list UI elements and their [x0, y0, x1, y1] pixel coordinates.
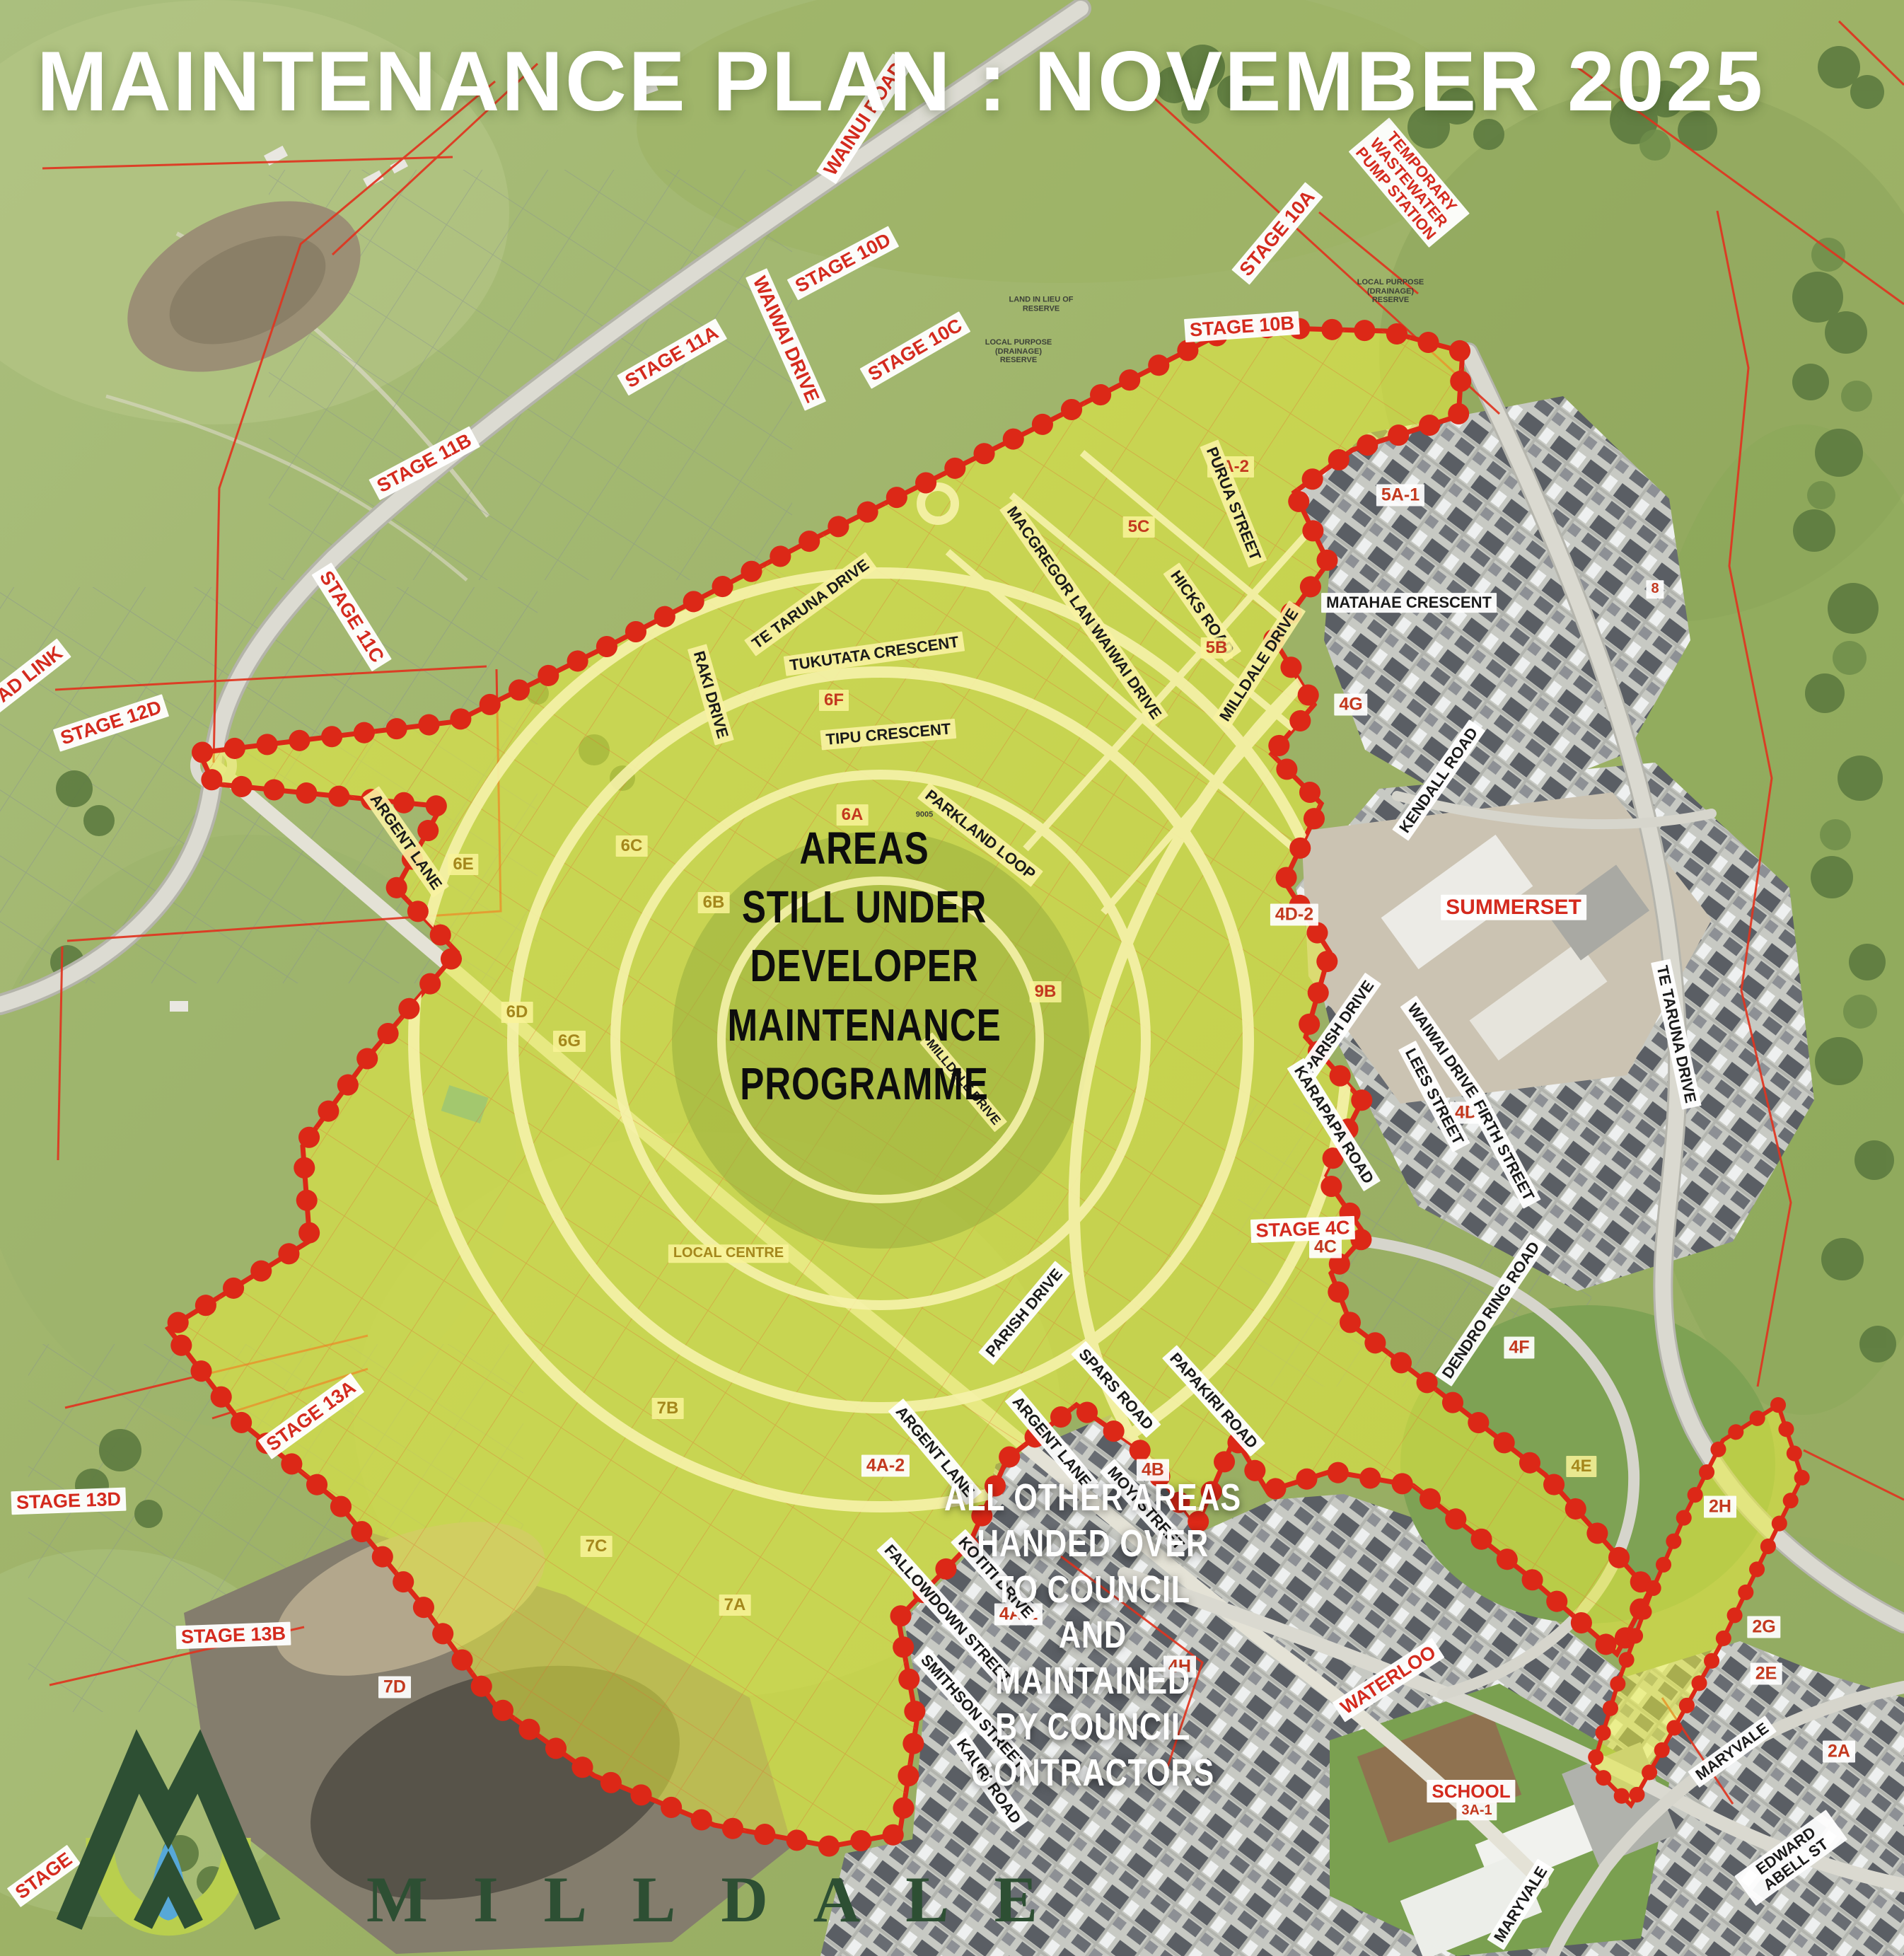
map-label: WAIWAI DRIVE [1084, 617, 1168, 727]
milldale-logo: MILLDALE [41, 1685, 1173, 1956]
map-label: STAGE 13D [11, 1488, 126, 1515]
map-label: 2G [1747, 1616, 1780, 1638]
map-label: TIPU CRESCENT [820, 719, 957, 750]
map-label: STAGE 13A [258, 1373, 365, 1459]
map-label: 7A [719, 1595, 751, 1616]
map-label: LOCAL CENTRE [668, 1244, 789, 1263]
map-label: 4A-2 [861, 1455, 910, 1477]
map-label: ARGENT LANE [363, 786, 449, 898]
map-label: TE TARUNA DRIVE [1651, 959, 1701, 1109]
map-label: STAGE 11C [311, 562, 391, 671]
map-label: 2A [1823, 1741, 1855, 1763]
map-label: 9B [1030, 981, 1062, 1002]
map-label: TEMPORARY WASTEWATER PUMP STATION [1348, 117, 1469, 248]
map-root: WAINUI ROADSTAGE 10ATEMPORARY WASTEWATER… [0, 0, 1904, 1956]
map-label: WATERLOO [1333, 1638, 1445, 1722]
milldale-logo-icon [41, 1685, 296, 1956]
map-label: SCHOOL [1427, 1780, 1515, 1802]
milldale-wordmark: MILLDALE [366, 1862, 1083, 1937]
map-label: TE TARUNA DRIVE [744, 552, 877, 656]
map-label: SPARS ROAD [1071, 1341, 1161, 1438]
map-label: 6D [501, 1002, 533, 1023]
map-label: KARAPAPA ROAD [1287, 1058, 1381, 1192]
map-label: 4F [1504, 1337, 1534, 1359]
map-label: 4G [1334, 694, 1367, 716]
map-label: MACGREGOR LANE [999, 499, 1108, 642]
map-label: STAGE 10C [860, 311, 971, 389]
map-label: PARISH DRIVE [1296, 973, 1381, 1082]
map-label: 7C [581, 1536, 613, 1557]
map-label: RAKI DRIVE [687, 644, 734, 745]
map-label: 5B [1201, 637, 1233, 659]
map-title: MAINTENANCE PLAN : NOVEMBER 2025 [37, 33, 1765, 130]
map-label: KENDALL ROAD [1392, 719, 1485, 840]
map-label: 5C [1123, 516, 1155, 538]
map-label: TUKUTATA CRESCENT [784, 632, 965, 676]
map-label: 3A-1 [1456, 1802, 1497, 1820]
map-label: 8 [1646, 580, 1664, 598]
developer-maintenance-note: AREAS STILL UNDER DEVELOPER MAINTENANCE … [727, 819, 1001, 1113]
map-label: STAGE 11A [617, 319, 727, 396]
map-label: LOCAL PURPOSE (DRAINAGE) RESERVE [985, 338, 1052, 365]
map-label: 6B [698, 892, 730, 913]
map-label: 4E [1566, 1456, 1596, 1477]
map-label: STAGE 13B [175, 1622, 291, 1650]
map-label: MATAHAE CRESCENT [1321, 593, 1497, 613]
map-label: MILLDALE DRIVE [1212, 601, 1305, 729]
map-label: 4D-2 [1270, 904, 1318, 926]
map-label: 9005 [916, 811, 933, 820]
map-label: STAGE 10B [1184, 311, 1300, 342]
map-label: 6F [819, 690, 849, 711]
map-label: 6C [616, 835, 648, 857]
map-label: 5A-1 [1376, 485, 1424, 507]
map-label: STAGE 12D [53, 694, 169, 752]
map-label: 2E [1751, 1663, 1782, 1685]
map-label: LAND IN LIEU OF RESERVE [1009, 295, 1073, 313]
map-label: EDWARD ABELL ST [1734, 1810, 1847, 1906]
map-label: 6G [553, 1031, 586, 1052]
map-label: MARYVALE [1688, 1715, 1777, 1788]
map-label: 7B [652, 1398, 684, 1419]
map-label: DENDRO RING ROAD [1435, 1234, 1547, 1387]
map-label: 4C [1309, 1237, 1342, 1258]
map-label: 6E [448, 854, 478, 875]
map-label: 2H [1704, 1496, 1736, 1518]
map-label: FIRTH STREET [1466, 1092, 1540, 1209]
map-label: PARISH DRIVE [978, 1261, 1070, 1365]
map-label: ROAD LINK [0, 638, 71, 728]
map-label: SUMMERSET [1441, 895, 1586, 920]
map-label: PAPAKIRI ROAD [1162, 1345, 1265, 1456]
map-label: STAGE 10A [1231, 182, 1323, 284]
map-label: STAGE 10D [787, 226, 900, 300]
map-label: STAGE 11B [368, 427, 480, 501]
map-label: LOCAL PURPOSE (DRAINAGE) RESERVE [1357, 278, 1424, 305]
map-label: MARYVALE [1487, 1858, 1554, 1950]
